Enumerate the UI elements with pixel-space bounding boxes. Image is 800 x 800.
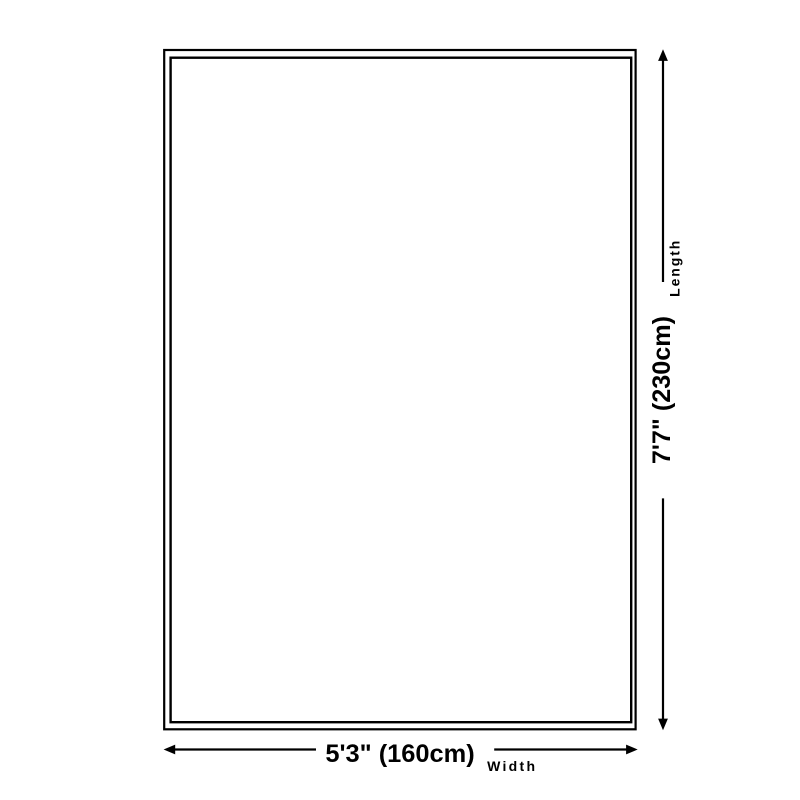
svg-text:Length: Length [667, 239, 683, 297]
svg-text:Width: Width [487, 758, 537, 774]
svg-text:5'3" (160cm): 5'3" (160cm) [325, 740, 474, 768]
svg-text:7'7" (230cm): 7'7" (230cm) [648, 316, 676, 464]
